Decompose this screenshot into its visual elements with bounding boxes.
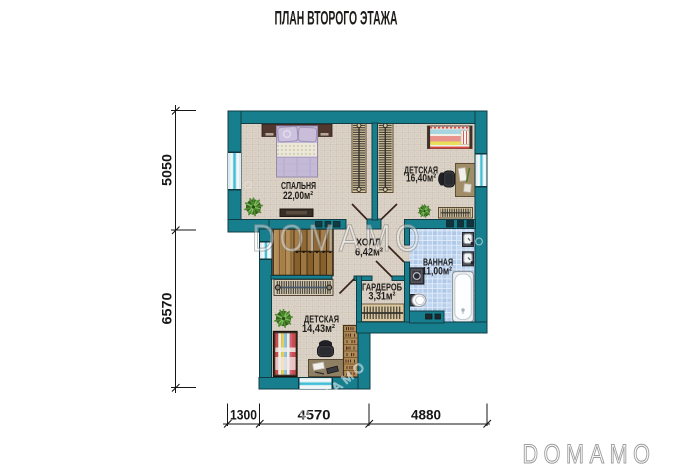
svg-text:ПЛАН ВТОРОГО ЭТАЖА: ПЛАН ВТОРОГО ЭТАЖА (275, 9, 398, 30)
svg-text:11,00м²: 11,00м² (422, 266, 452, 278)
svg-text:1300: 1300 (230, 408, 257, 423)
svg-text:14,43м²: 14,43м² (302, 323, 335, 335)
svg-text:DOMAMO: DOMAMO (523, 439, 656, 469)
svg-text:3,31м²: 3,31м² (369, 291, 396, 303)
svg-text:DOMAMO: DOMAMO (252, 218, 424, 260)
svg-text:6570: 6570 (160, 293, 175, 325)
svg-text:4880: 4880 (411, 408, 441, 423)
svg-text:16,40м²: 16,40м² (406, 173, 436, 185)
svg-text:5050: 5050 (160, 154, 175, 186)
svg-text:22,00м²: 22,00м² (283, 190, 313, 202)
